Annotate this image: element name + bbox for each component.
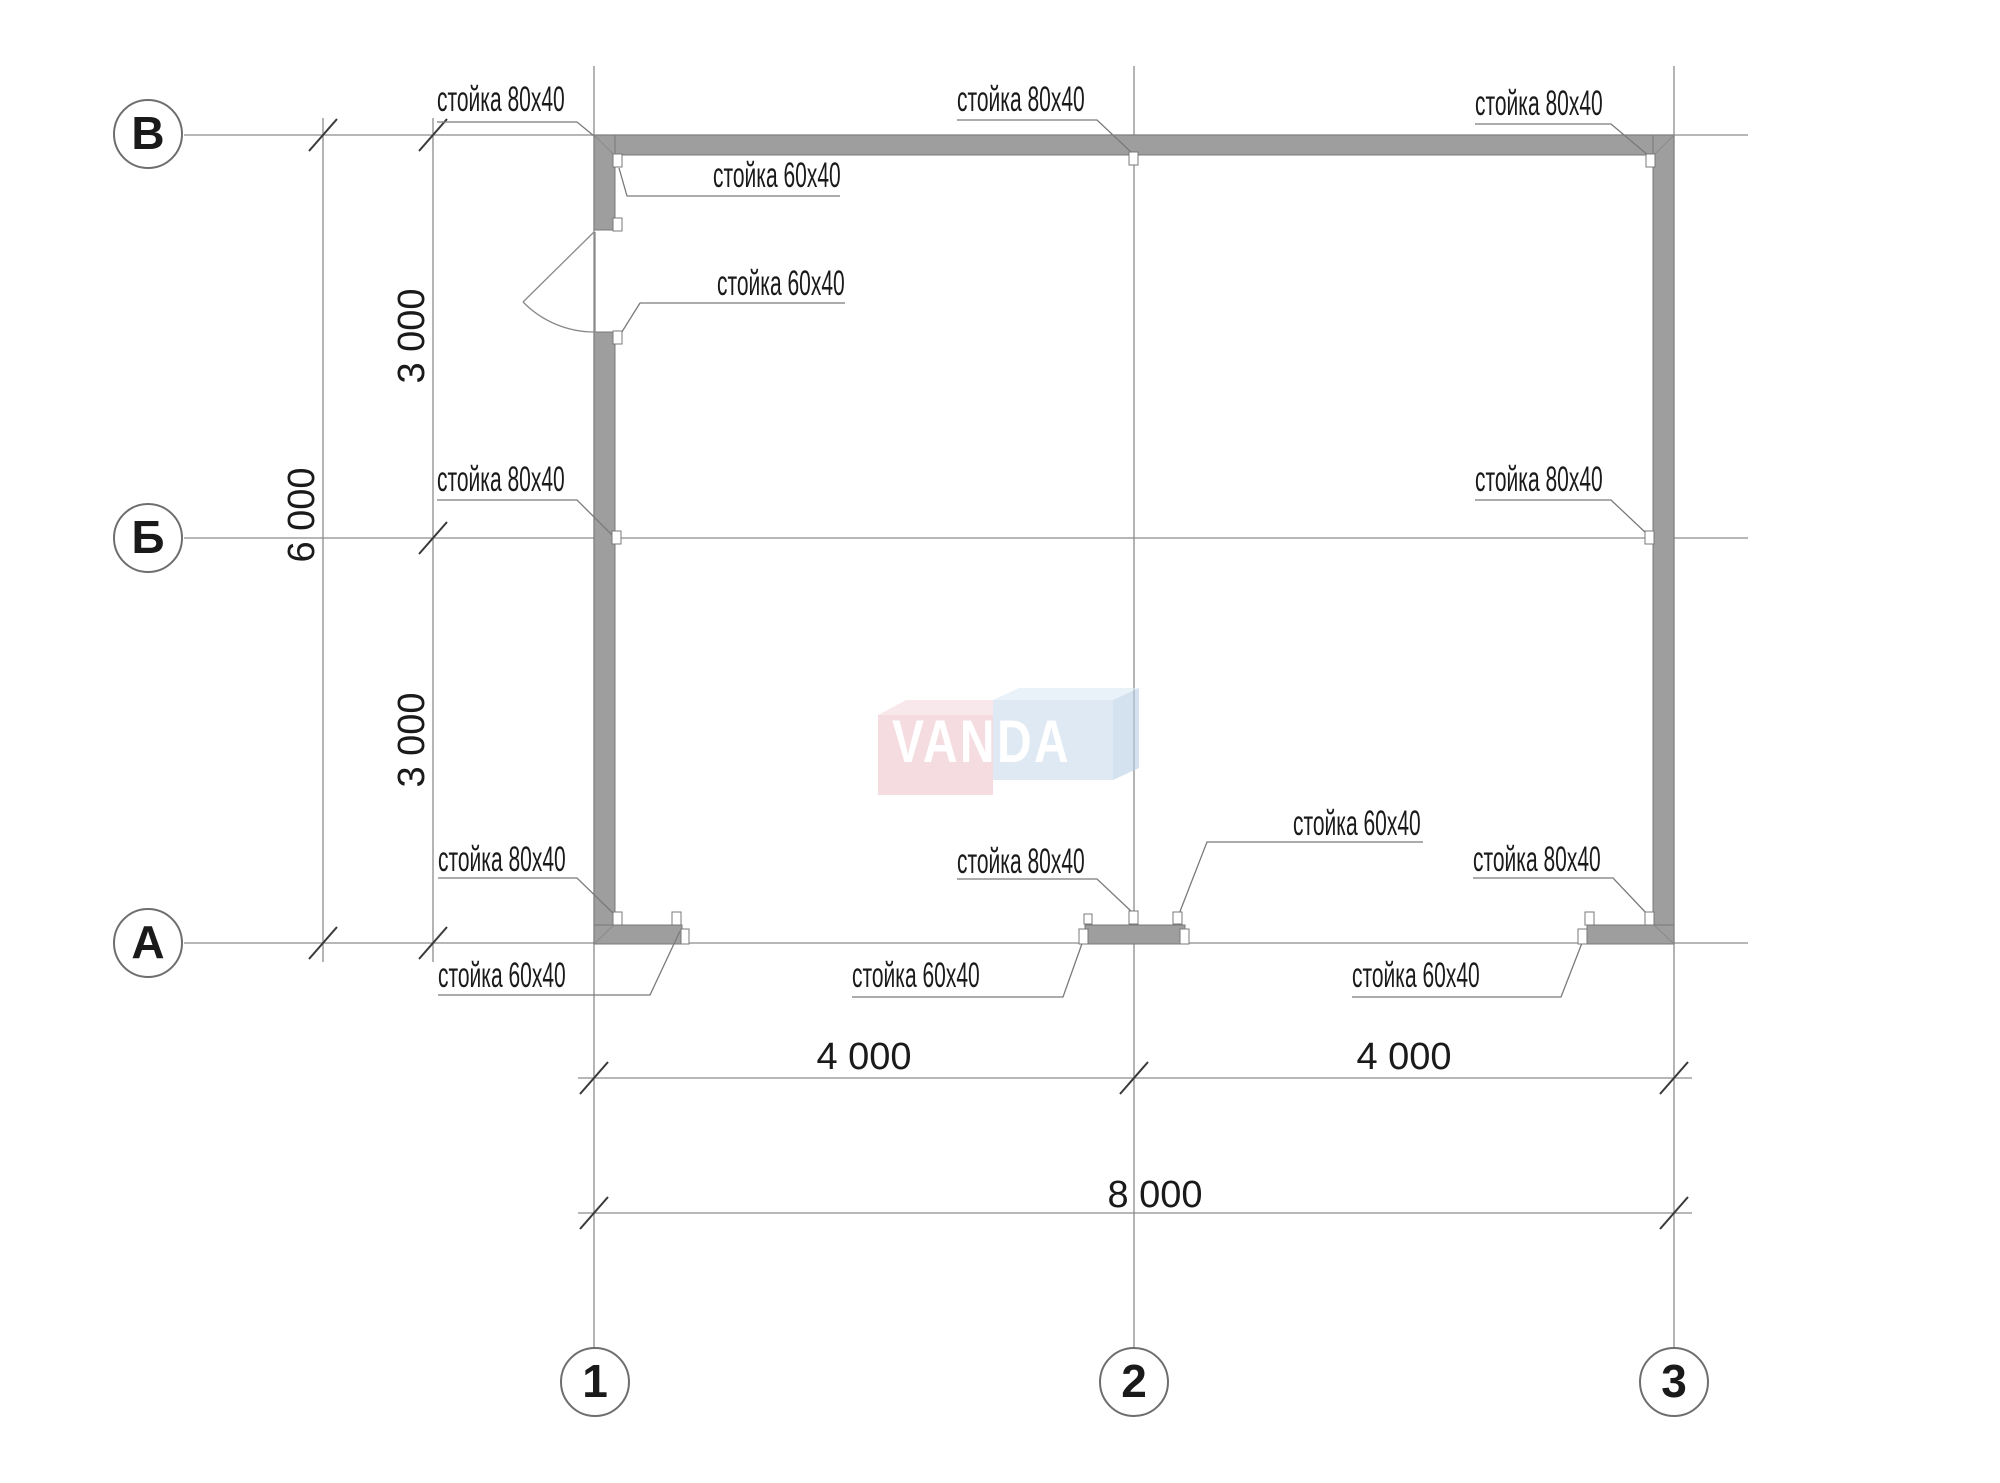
wall-bottom-pier xyxy=(1085,925,1185,944)
stud-label: стойка 60х40 xyxy=(713,158,841,193)
stud-pier-left xyxy=(1084,914,1092,924)
axis-bubble-row-a: А xyxy=(113,908,183,978)
dim-text-3000-top: 3 000 xyxy=(393,288,431,383)
stud-80x40-left-axis-b xyxy=(612,531,621,544)
dim-text-3000-bottom: 3 000 xyxy=(393,692,431,787)
stud-80x40-bottom-left-corner xyxy=(613,912,622,925)
stud-80x40-top-right-corner xyxy=(1646,154,1655,167)
wall-left-lower xyxy=(594,332,615,944)
vanda-watermark-logo: VANDA xyxy=(878,688,1148,798)
dim-text-4000-right: 4 000 xyxy=(1356,1038,1451,1076)
stud-80x40-top-axis-2 xyxy=(1129,152,1138,165)
door-swing xyxy=(523,232,596,333)
stud-60x40-top-left xyxy=(613,154,622,167)
leader-6 xyxy=(437,500,613,536)
jamb-pier-left xyxy=(1079,929,1088,944)
stud-label: стойка 80х40 xyxy=(957,844,1085,879)
floor-plan-canvas: VANDA стойка 80х40 стойка 80х40 стойка 8… xyxy=(0,0,2000,1483)
stud-label: стойка 80х40 xyxy=(1473,842,1601,877)
dimension-lines xyxy=(323,118,1692,1213)
dim-text-4000-left: 4 000 xyxy=(816,1038,911,1076)
stud-label: стойка 60х40 xyxy=(1352,958,1480,993)
stud-80x40-bottom-right-corner xyxy=(1645,912,1654,925)
stud-60x40-door-bottom-jamb xyxy=(613,331,622,344)
stud-label: стойка 80х40 xyxy=(1475,462,1603,497)
logo-text: VANDA xyxy=(892,712,1071,772)
stud-60x40-bottom-left-opening xyxy=(672,912,681,925)
dim-text-8000-total: 8 000 xyxy=(1107,1176,1202,1214)
stud-label: стойка 80х40 xyxy=(438,842,566,877)
stud-label: стойка 60х40 xyxy=(852,958,980,993)
stud-60x40-pier-right xyxy=(1173,912,1182,924)
leader-8 xyxy=(438,878,615,915)
leader-11 xyxy=(1473,878,1648,915)
leader-5 xyxy=(620,303,845,335)
axis-bubble-col-1: 1 xyxy=(560,1347,630,1417)
leader-7 xyxy=(1475,500,1647,534)
stud-label: стойка 80х40 xyxy=(957,82,1085,117)
stud-bottom-right-opening xyxy=(1585,912,1594,925)
axis-bubble-row-v: В xyxy=(113,99,183,169)
dim-text-6000-total: 6 000 xyxy=(283,467,321,562)
door-leaf xyxy=(523,232,594,302)
stud-label: стойка 60х40 xyxy=(1293,806,1421,841)
leader-10 xyxy=(1179,842,1423,914)
wall-bottom-left xyxy=(594,925,682,944)
jamb-pier-right xyxy=(1180,929,1189,944)
stud-label: стойка 80х40 xyxy=(437,462,565,497)
leader-9 xyxy=(957,879,1132,912)
leader-1 xyxy=(437,122,594,136)
axis-bubble-col-2: 2 xyxy=(1099,1347,1169,1417)
stud-label: стойка 80х40 xyxy=(437,82,565,117)
door-arc xyxy=(523,302,596,332)
axis-bubble-row-b: Б xyxy=(113,503,183,573)
jamb-bottom-right xyxy=(1578,929,1587,944)
wall-left-upper xyxy=(594,135,615,230)
axis-bubble-col-3: 3 xyxy=(1639,1347,1709,1417)
wall-right xyxy=(1653,135,1674,944)
stud-label: стойка 60х40 xyxy=(438,958,566,993)
jamb-bottom-left xyxy=(681,929,689,944)
stud-80x40-pier-center xyxy=(1129,911,1138,924)
dimension-ticks xyxy=(309,119,1688,1229)
stud-door-top-jamb xyxy=(613,218,622,231)
stud-label: стойка 80х40 xyxy=(1475,86,1603,121)
stud-80x40-right-axis-b xyxy=(1645,531,1654,544)
wall-bottom-right xyxy=(1587,925,1674,944)
stud-label: стойка 60х40 xyxy=(717,266,845,301)
